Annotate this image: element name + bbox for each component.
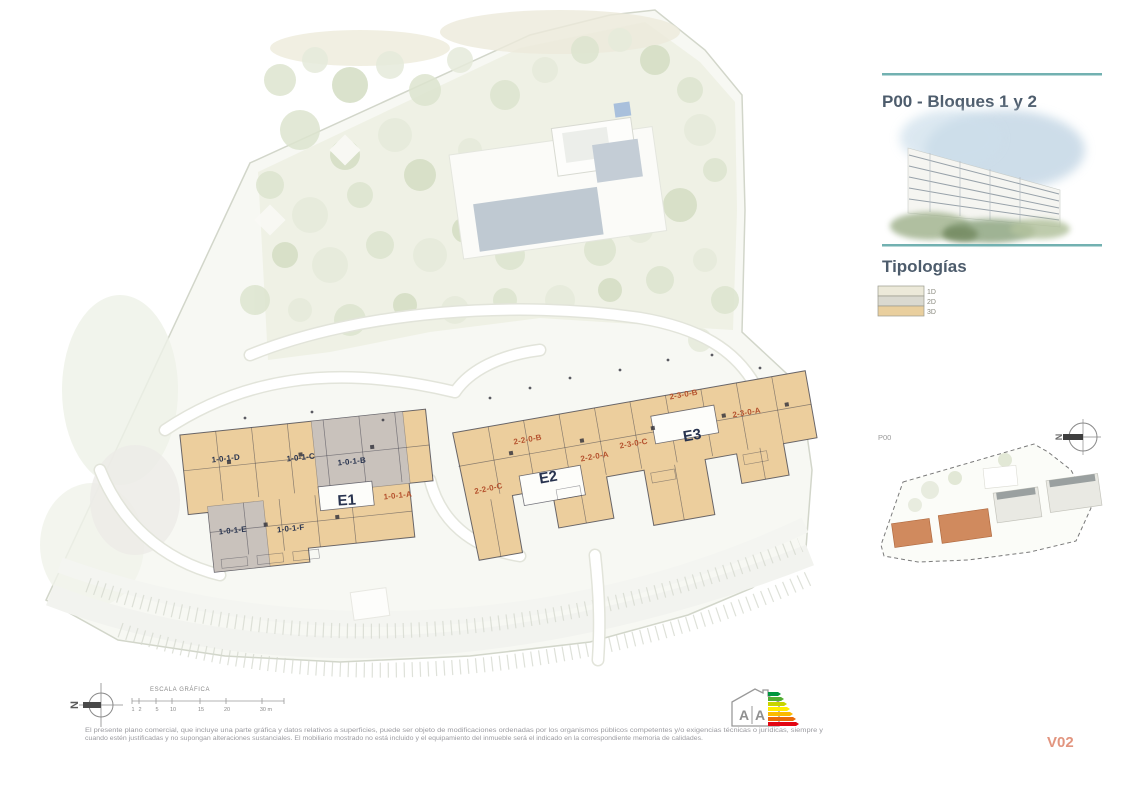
scale-tick: 15 [198, 707, 204, 713]
sheet-canvas: 1-0-1-D 1-0-1-C 1-0-1-B 1-0-1-A 1-0-1-E … [0, 0, 1128, 800]
panel-rule-bottom [882, 244, 1102, 247]
legend-swatch-3d [878, 306, 924, 316]
plan-sheet: 1-0-1-D 1-0-1-C 1-0-1-B 1-0-1-A 1-0-1-E … [0, 0, 1128, 800]
energy-arrows [768, 692, 799, 726]
locator-map: P00 N [878, 419, 1102, 562]
energy-letter-right: A [755, 707, 765, 723]
panel-title: P00 - Bloques 1 y 2 [882, 92, 1037, 111]
energy-letter-left: A [739, 707, 749, 723]
panel-rule-top [882, 73, 1102, 76]
scale-tick: 2 [138, 707, 141, 713]
scale-tick: 10 [170, 707, 176, 713]
locator-highlight-block1 [892, 518, 933, 547]
locator-compass: N [1054, 419, 1101, 455]
scale-tick: 20 [224, 707, 230, 713]
scale-tick: 5 [155, 707, 158, 713]
building-label-e3: E3 [682, 426, 703, 446]
disclaimer-line-2: cuando estén justificadas y no supongan … [85, 735, 703, 742]
version-label: V02 [1047, 734, 1074, 751]
building-label-e1: E1 [337, 491, 357, 509]
typologies-legend: 1D 2D 3D [878, 286, 936, 316]
scale-bar-title: ESCALA GRÁFICA [150, 686, 210, 693]
legend-label-1d: 1D [927, 289, 936, 296]
building-watercolor-image [890, 110, 1085, 243]
north-compass: N [69, 683, 123, 727]
typologies-heading: Tipologías [882, 257, 967, 276]
legend-label-2d: 2D [927, 299, 936, 306]
disclaimer-line-1: El presente plano comercial, que incluye… [85, 727, 824, 734]
locator-compass-letter: N [1054, 434, 1064, 441]
building-label-e2: E2 [538, 468, 559, 488]
pool-small [592, 139, 643, 183]
scale-tick: 1 [131, 707, 134, 713]
legend-label-3d: 3D [927, 309, 936, 316]
sheet-footer: N ESCALA GRÁFICA 1 2 5 10 15 20 30 m A [69, 683, 1074, 751]
energy-rating-icon: A A [732, 689, 799, 726]
legend-swatch-1d [878, 286, 924, 296]
site-plan: 1-0-1-D 1-0-1-C 1-0-1-B 1-0-1-A 1-0-1-E … [40, 10, 828, 670]
locator-floor-label: P00 [878, 433, 891, 442]
scale-bar: ESCALA GRÁFICA 1 2 5 10 15 20 30 m [131, 686, 284, 713]
compass-north-letter: N [69, 701, 81, 709]
legend-swatch-2d [878, 296, 924, 306]
scale-tick: 30 m [260, 707, 273, 713]
side-panel: P00 - Bloques 1 y 2 Tipologías [878, 73, 1102, 562]
